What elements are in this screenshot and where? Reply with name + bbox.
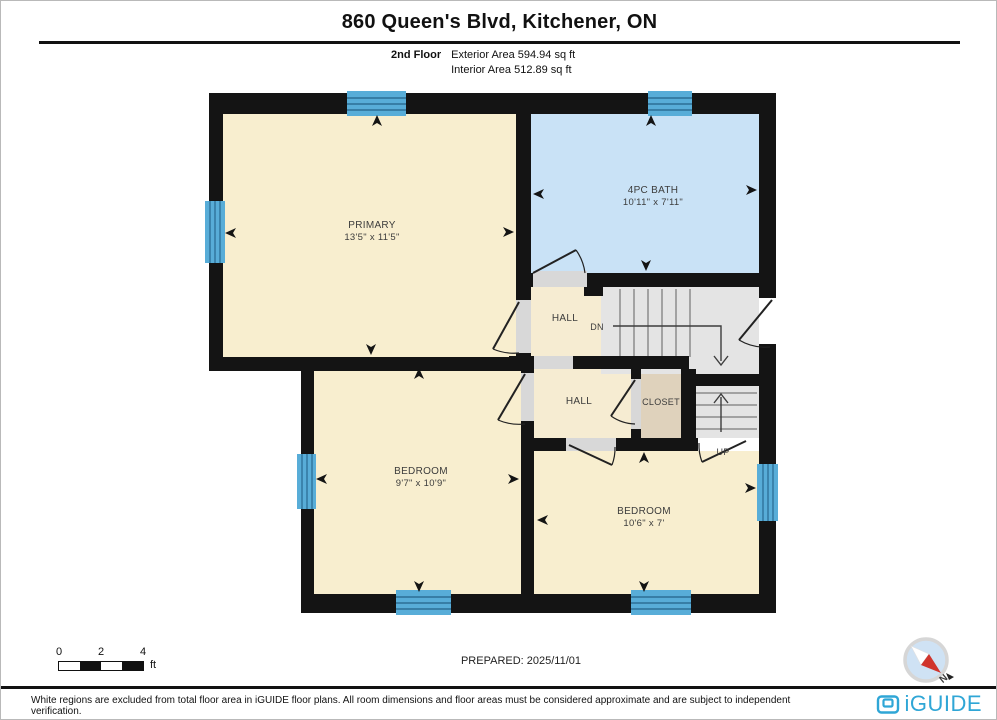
iguide-icon bbox=[876, 693, 900, 715]
floorplan-page: 860 Queen's Blvd, Kitchener, ON 2nd Floo… bbox=[0, 0, 997, 720]
scale-bar-unit: ft bbox=[150, 659, 156, 671]
prepared-date: PREPARED: 2025/11/01 bbox=[381, 655, 661, 667]
bedroom-left-dims: 9'7" x 10'9" bbox=[394, 478, 448, 490]
window-bottom-bedroom-left bbox=[396, 590, 451, 615]
primary-label: PRIMARY 13'5" x 11'5" bbox=[344, 220, 399, 244]
lower-hall-label: HALL bbox=[566, 396, 592, 408]
window-left-primary bbox=[205, 201, 225, 263]
bedroom-left-name: BEDROOM bbox=[394, 466, 448, 478]
window-left-bedroom bbox=[297, 454, 316, 509]
footer-divider bbox=[1, 686, 997, 689]
upper-hall-label: HALL bbox=[552, 313, 578, 325]
bedroom-right-name: BEDROOM bbox=[617, 506, 671, 518]
bath-name: 4PC BATH bbox=[623, 185, 683, 197]
brand-name: iGUIDE bbox=[904, 691, 982, 717]
scale-bar-numbers: 0 2 4 bbox=[52, 646, 156, 658]
stairs-up-fill bbox=[689, 386, 759, 438]
stairs-dn-label: DN bbox=[590, 322, 604, 332]
bedroom-right-label: BEDROOM 10'6" x 7' bbox=[617, 506, 671, 530]
primary-dims: 13'5" x 11'5" bbox=[344, 232, 399, 244]
brand-logo: iGUIDE bbox=[876, 691, 982, 717]
closet-label: CLOSET bbox=[642, 397, 680, 407]
floorplan-drawing bbox=[1, 1, 997, 720]
bedroom-left-label: BEDROOM 9'7" x 10'9" bbox=[394, 466, 448, 490]
stairs-up-label: UP bbox=[716, 447, 729, 457]
disclaimer-text: White regions are excluded from total fl… bbox=[31, 695, 831, 717]
scale-bar bbox=[58, 661, 144, 671]
bath-dims: 10'11" x 7'11" bbox=[623, 197, 683, 209]
bath-label: 4PC BATH 10'11" x 7'11" bbox=[623, 185, 683, 209]
primary-name: PRIMARY bbox=[344, 220, 399, 232]
window-bottom-bedroom-right bbox=[631, 590, 691, 615]
window-top-primary bbox=[347, 91, 406, 116]
window-right-bedroom bbox=[757, 464, 778, 521]
bedroom-right-dims: 10'6" x 7' bbox=[617, 518, 671, 530]
window-top-bath bbox=[648, 91, 692, 116]
compass-icon bbox=[905, 639, 954, 681]
